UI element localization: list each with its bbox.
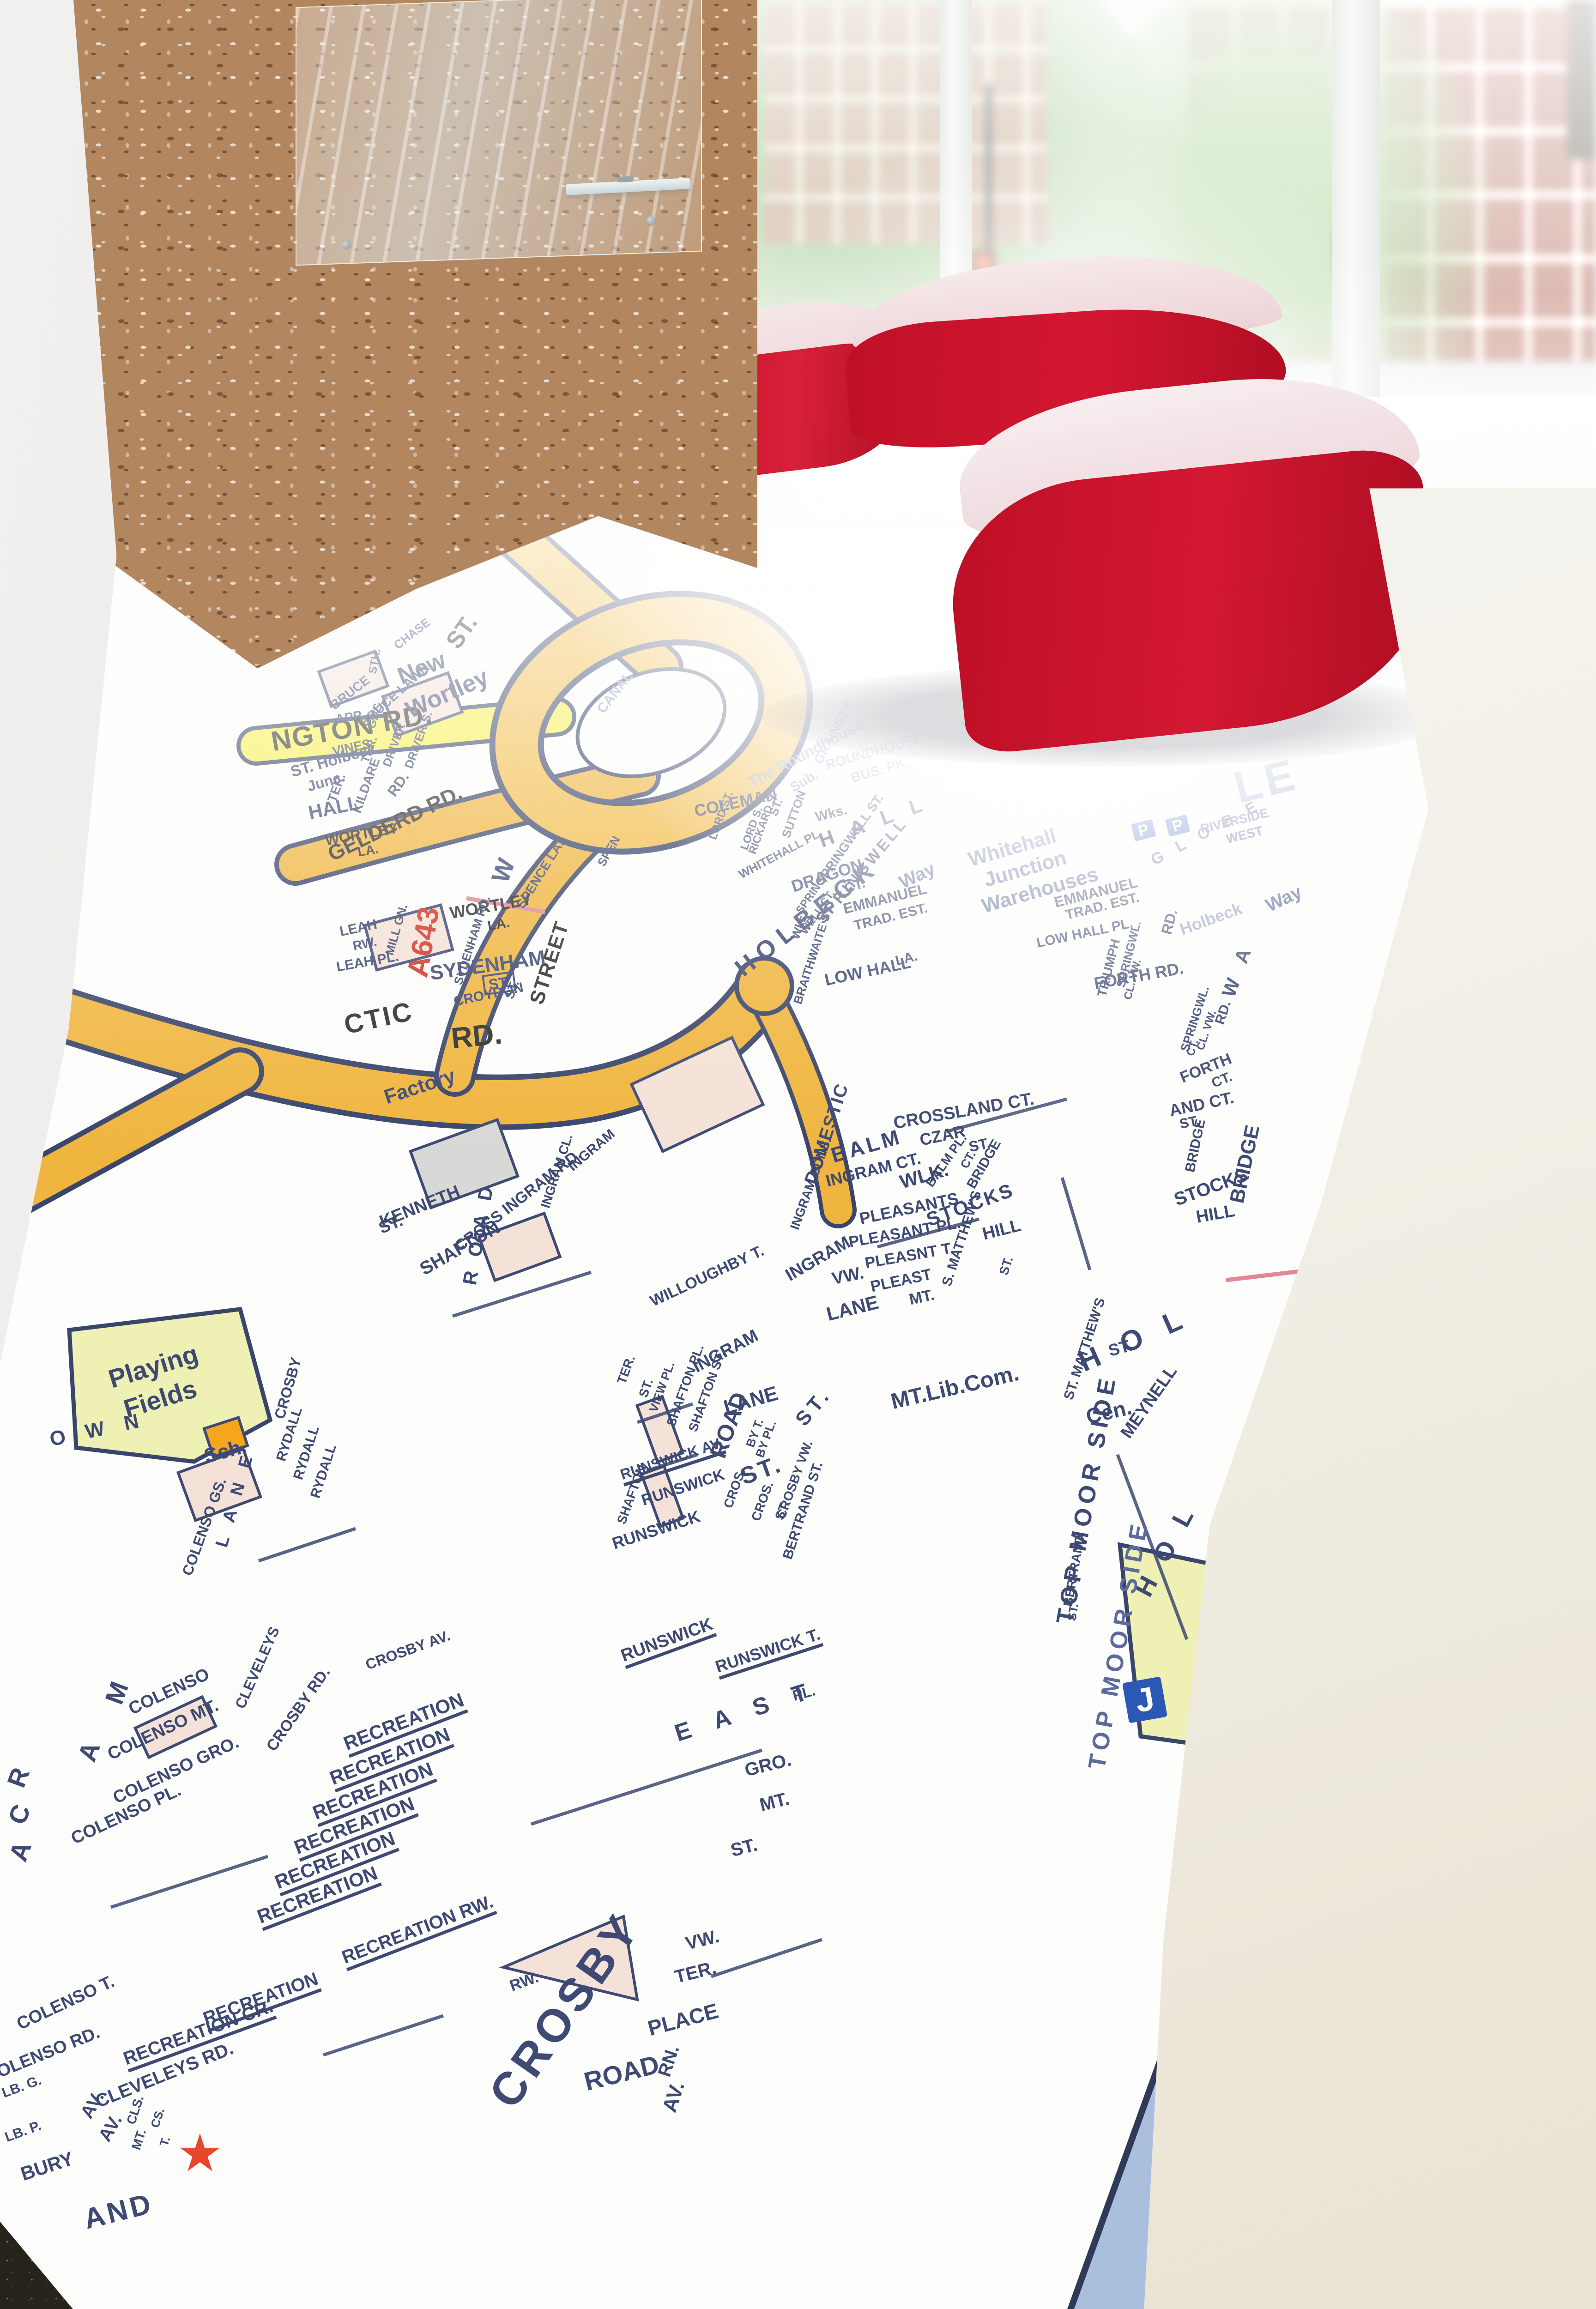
map-label: WILLOUGHBY T.	[648, 1243, 767, 1309]
map-label: ST.	[773, 1499, 792, 1522]
map-label: BRIDGE	[1227, 1124, 1263, 1205]
map-label: RECREATION RW.	[339, 1892, 497, 1971]
map-label: CTIC	[342, 998, 416, 1039]
map-label: TER.	[673, 1958, 718, 1987]
map-label: W A	[1219, 940, 1256, 999]
map-label: RN.	[655, 2043, 682, 2079]
map-label: ST.	[442, 610, 482, 653]
map-label: ★	[179, 2130, 221, 2176]
map-label: CHASE	[392, 616, 432, 652]
map-label: AND	[81, 2189, 157, 2234]
map-label: RD.	[385, 769, 411, 798]
map-label: Way	[1263, 882, 1305, 915]
map-label: SPEN	[595, 834, 622, 868]
map-label: P	[1131, 819, 1156, 841]
map-label: CANAL	[595, 669, 635, 716]
map-label: CLEVELEYS	[233, 1625, 282, 1711]
map-label: SUTTON	[780, 789, 808, 840]
map-label: RUNSWICK T.	[713, 1626, 824, 1680]
map-label: SPENCE LA.	[514, 838, 567, 910]
map-label: Holbeck	[1178, 900, 1244, 938]
map-label: A	[74, 1738, 104, 1765]
map-label: AND CT.	[1168, 1089, 1235, 1119]
map-label: GRO.	[743, 1750, 793, 1780]
map-label: AV.	[659, 2079, 688, 2115]
map-label: VW.	[684, 1927, 721, 1953]
map-label: COLENSO RD.	[0, 2024, 102, 2085]
map-label: HILL	[980, 1216, 1022, 1243]
map-label: CROSBY RD.	[264, 1664, 333, 1754]
map-label: PLACE	[646, 2000, 720, 2039]
map-label: MT.Lib.Com.	[889, 1362, 1021, 1413]
map-label: ST.	[792, 1384, 835, 1430]
map-label: ST.	[729, 1836, 759, 1860]
map-label: A	[5, 1838, 36, 1864]
map-label: E A S T	[672, 1677, 819, 1746]
mirror-panel	[296, 0, 702, 266]
map-label: Sub.	[788, 768, 821, 795]
map-label: RD.	[450, 1018, 503, 1053]
map-label: RW.	[351, 935, 378, 953]
map-label: VW.	[830, 1264, 865, 1288]
map-label: MT.	[758, 1789, 791, 1814]
map-label: ROAD	[581, 2051, 662, 2095]
map-label: KILDARE	[351, 756, 382, 815]
map-label: STH.	[367, 648, 382, 675]
map-label: ST.	[997, 1255, 1015, 1276]
map-label: C	[4, 1801, 35, 1827]
map-label: ST.	[1065, 1602, 1080, 1622]
map-label: T.	[158, 2135, 172, 2147]
map-label: LOW HALL	[823, 954, 912, 989]
map-label: J	[1122, 1676, 1167, 1723]
map-label: TER.	[615, 1354, 637, 1386]
map-label: CROS.	[722, 1467, 748, 1510]
lobby-photo: CANALThe RoundhouseGRAINGERROUNDHOUSEBUS…	[0, 0, 1596, 2309]
map-label: TOP MOOR SIDE	[1085, 1518, 1152, 1771]
map-label: M	[101, 1679, 133, 1708]
map-label: LB. P.	[3, 2119, 43, 2145]
map-label: LANE	[824, 1293, 880, 1324]
map-label: AV.	[96, 2111, 126, 2145]
red-bench-large	[932, 362, 1446, 756]
map-label: LA.	[487, 916, 511, 933]
mirror-standoff-pin	[342, 240, 351, 249]
map-label: BURY	[18, 2149, 76, 2184]
map-label: CS.	[149, 2106, 166, 2129]
map-label: LA.	[357, 842, 379, 858]
map-label: W	[488, 855, 519, 886]
map-label: CROSBY AV.	[363, 1628, 452, 1672]
map-label: Factory	[382, 1066, 458, 1108]
map-label: RUNSWICK	[619, 1615, 717, 1669]
map-label: COLENSO T.	[14, 1973, 117, 2033]
map-label: RW.	[508, 1969, 540, 1994]
map-label: BRUCE	[328, 673, 372, 712]
map-label: MT.	[130, 2128, 149, 2152]
map-label: RD.	[1159, 907, 1179, 936]
map-label: MT.	[908, 1287, 936, 1308]
map-label: HILL	[1195, 1202, 1236, 1226]
map-label: R	[3, 1764, 34, 1790]
mirror-standoff-pin	[647, 216, 656, 225]
